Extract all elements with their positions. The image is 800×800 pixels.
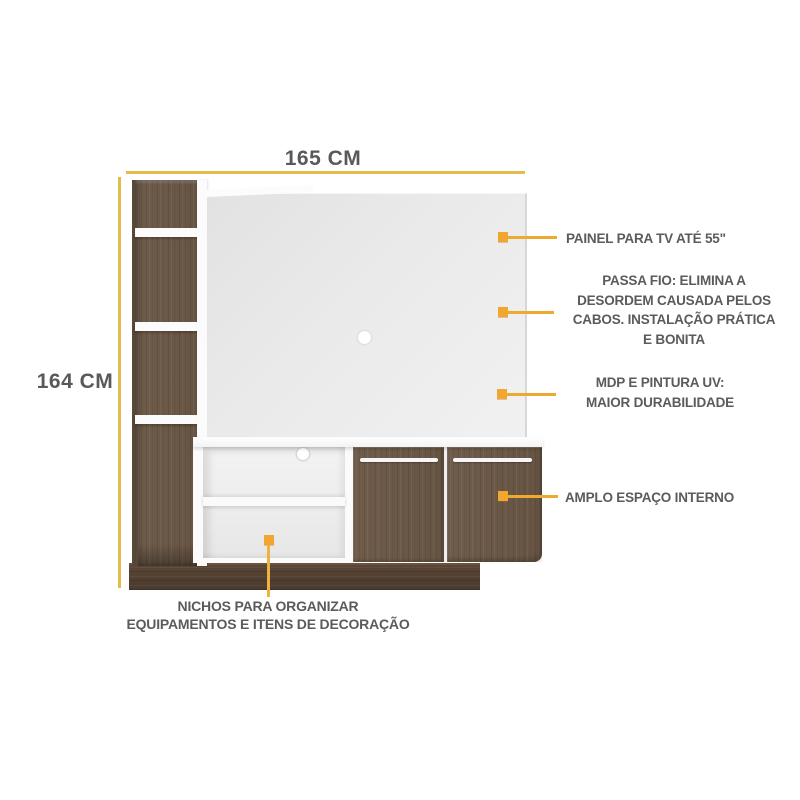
left-shelf-tower <box>132 180 200 566</box>
height-dimension-label: 164 CM <box>29 370 121 394</box>
cabinet-door-right <box>447 447 542 562</box>
tower-shelf <box>135 228 197 237</box>
tower-shelf <box>135 322 197 331</box>
tower-shelf <box>135 415 197 424</box>
marker-square-icon <box>498 232 508 242</box>
base-plinth <box>129 563 480 590</box>
callout-label-mdp-uv: MDP E PINTURA UV: MAIOR DURABILIDADE <box>565 373 755 413</box>
cabinet-door-left <box>353 447 444 562</box>
callout-line <box>507 393 556 396</box>
callout-label-line: DESORDEM CAUSADA PELOS <box>558 291 790 311</box>
callout-label-niches: NICHOS PARA ORGANIZAR EQUIPAMENTOS E ITE… <box>108 597 428 633</box>
cable-hole-top-icon <box>358 331 371 344</box>
callout-label-line: E BONITA <box>558 330 790 350</box>
width-dimension-label: 165 CM <box>253 147 393 171</box>
door-handle <box>360 458 438 462</box>
callout-label-line: EQUIPAMENTOS E ITENS DE DECORAÇÃO <box>108 615 428 633</box>
product-diagram: 165 CM 164 CM PAINEL PARA TV ATÉ 55" PAS… <box>0 0 800 800</box>
back-panel <box>207 193 527 438</box>
marker-square-icon <box>498 491 508 501</box>
door-handle <box>453 458 532 462</box>
callout-label-line: MDP E PINTURA UV: <box>565 373 755 393</box>
marker-square-icon <box>497 389 507 399</box>
width-dimension-line <box>126 171 525 174</box>
callout-line <box>508 311 554 314</box>
callout-label-line: CABOS. INSTALAÇÃO PRÁTICA <box>558 310 790 330</box>
callout-line <box>508 236 557 239</box>
height-dimension-line <box>118 177 121 588</box>
callout-line <box>508 495 558 498</box>
niche-shelf <box>203 497 345 506</box>
marker-square-icon <box>264 535 274 545</box>
cable-hole-bottom-icon <box>297 448 309 460</box>
tower-bottom-shadow <box>138 544 197 566</box>
callout-label-line: NICHOS PARA ORGANIZAR <box>108 597 428 615</box>
callout-label-interior-space: AMPLO ESPAÇO INTERNO <box>565 488 734 507</box>
cabinet-top-surface <box>193 437 543 447</box>
marker-square-icon <box>498 307 508 317</box>
callout-label-line: PASSA FIO: ELIMINA A <box>558 271 790 291</box>
callout-vertical-line <box>267 545 270 597</box>
callout-label-tv-panel: PAINEL PARA TV ATÉ 55" <box>566 229 726 248</box>
callout-label-line: MAIOR DURABILIDADE <box>565 393 755 413</box>
callout-label-cable-pass: PASSA FIO: ELIMINA A DESORDEM CAUSADA PE… <box>558 271 790 349</box>
